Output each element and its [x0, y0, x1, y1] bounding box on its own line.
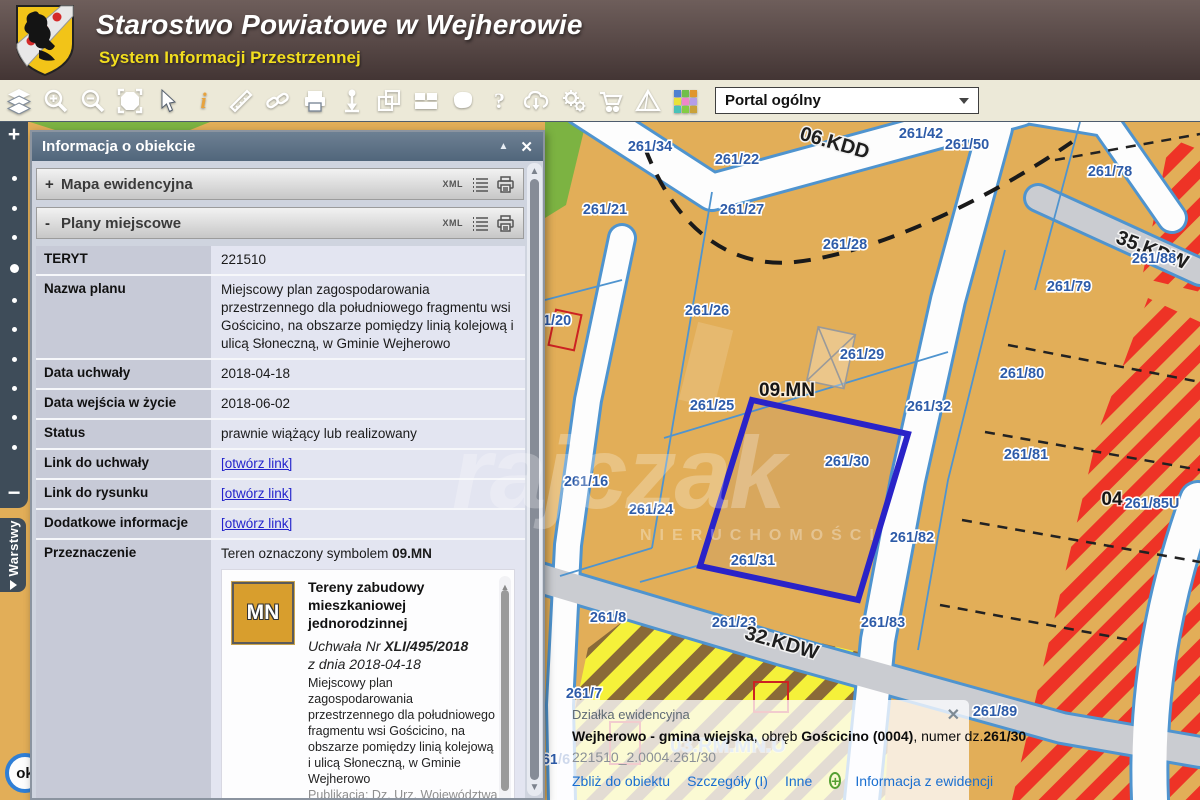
- svg-text:261/89: 261/89: [973, 704, 1017, 720]
- parcel-id: 221510_2.0004.261/30: [572, 749, 957, 765]
- list-icon[interactable]: [472, 177, 489, 192]
- panel-title: Informacja o obiekcie: [42, 138, 499, 155]
- table-row: Link do uchwały [otwórz link]: [36, 450, 525, 480]
- section-label: Mapa ewidencyjna: [61, 176, 443, 193]
- zoom-bar: + −: [0, 122, 28, 508]
- scroll-down-icon[interactable]: ▼: [527, 782, 542, 793]
- table-row: Data wejścia w życie 2018-06-02: [36, 390, 525, 420]
- close-icon[interactable]: ✕: [947, 705, 960, 725]
- svg-text:261/22: 261/22: [715, 152, 759, 168]
- settings-gears-icon[interactable]: [555, 84, 592, 118]
- svg-text:261/34: 261/34: [628, 139, 672, 155]
- field-label: Link do rysunku: [36, 480, 211, 508]
- publication-info: Publikacja: Dz. Urz. Województwa Pomorsk…: [308, 787, 498, 798]
- zoom-out-icon[interactable]: [74, 84, 111, 118]
- svg-text:261/16: 261/16: [564, 474, 608, 490]
- field-value: 221510: [211, 246, 525, 274]
- section-label: Plany miejscowe: [61, 215, 443, 232]
- other-link[interactable]: Inne: [785, 773, 812, 789]
- field-label: Przeznaczenie: [36, 540, 211, 798]
- measure-icon[interactable]: [222, 84, 259, 118]
- zone-title: Tereny zabudowy mieszkaniowej jednorodzi…: [308, 578, 498, 632]
- zoom-in-icon[interactable]: [37, 84, 74, 118]
- zoom-level-dot[interactable]: [12, 357, 17, 362]
- field-value: prawnie wiążący lub realizowany: [211, 420, 525, 448]
- warning-pyramid-icon[interactable]: [629, 84, 666, 118]
- download-marker-icon[interactable]: [333, 84, 370, 118]
- info-icon[interactable]: i: [185, 84, 222, 118]
- list-icon[interactable]: [472, 216, 489, 231]
- open-link[interactable]: [otwórz link]: [221, 456, 292, 471]
- resolution-number: Uchwała Nr XLI/495/2018: [308, 637, 498, 655]
- details-link[interactable]: Szczegóły (I): [687, 773, 768, 789]
- close-icon[interactable]: ✕: [520, 138, 533, 156]
- svg-text:261/21: 261/21: [583, 202, 627, 218]
- scroll-up-icon[interactable]: ▲: [527, 166, 542, 177]
- print-icon[interactable]: [496, 176, 515, 193]
- zoom-level-dot[interactable]: [12, 235, 17, 240]
- svg-text:261/85U: 261/85U: [1125, 496, 1180, 512]
- zoom-out-button[interactable]: −: [8, 478, 21, 508]
- svg-text:261/28: 261/28: [823, 237, 867, 253]
- zoom-level-dot[interactable]: [12, 176, 17, 181]
- portal-select[interactable]: Portal ogólny: [715, 87, 979, 114]
- field-value: 2018-06-02: [211, 390, 525, 418]
- zone-swatch-mn: MN: [232, 582, 294, 644]
- table-row: Dodatkowe informacje [otwórz link]: [36, 510, 525, 540]
- xml-button[interactable]: XML: [443, 179, 464, 189]
- section-plany-miejscowe[interactable]: - Plany miejscowe XML: [36, 207, 524, 239]
- svg-text:261/27: 261/27: [720, 202, 764, 218]
- object-info-panel: Informacja o obiekcie ▲ ✕ + Mapa ewidenc…: [30, 130, 545, 800]
- field-label: Data uchwały: [36, 360, 211, 388]
- scrollbar-thumb[interactable]: [501, 590, 509, 791]
- svg-text:09.MN: 09.MN: [759, 380, 815, 401]
- main-toolbar: i ? Portal ogólny: [0, 80, 1200, 122]
- site-subtitle: System Informacji Przestrzennej: [99, 48, 361, 68]
- field-label: Data wejścia w życie: [36, 390, 211, 418]
- svg-text:261/81: 261/81: [1004, 447, 1048, 463]
- svg-text:261/80: 261/80: [1000, 366, 1044, 382]
- zoom-level-dot[interactable]: [12, 327, 17, 332]
- layout-icon[interactable]: [407, 84, 444, 118]
- plan-attributes-table: TERYT 221510 Nazwa planu Miejscowy plan …: [36, 246, 525, 798]
- map-green-area: [30, 122, 210, 130]
- field-label: Dodatkowe informacje: [36, 510, 211, 538]
- svg-text:261/88: 261/88: [1132, 251, 1176, 267]
- svg-text:261/24: 261/24: [629, 502, 673, 518]
- open-link[interactable]: [otwórz link]: [221, 486, 292, 501]
- site-title: Starostwo Powiatowe w Wejherowie: [96, 9, 583, 41]
- inner-scrollbar[interactable]: ▲ ▼: [499, 576, 511, 798]
- portal-select-value: Portal ogólny: [725, 92, 821, 109]
- help-icon[interactable]: ?: [481, 84, 518, 118]
- parcel-identity: Wejherowo - gmina wiejska, obręb Gościci…: [572, 728, 957, 744]
- coat-of-arms: [13, 4, 77, 77]
- field-label: Nazwa planu: [36, 276, 211, 358]
- cart-icon[interactable]: [592, 84, 629, 118]
- link-icon[interactable]: [259, 84, 296, 118]
- panel-body: + Mapa ewidencyjna XML - Plany miejscowe…: [32, 161, 543, 798]
- zone-detail-box: MN Tereny zabudowy mieszkaniowej jednoro…: [221, 569, 515, 798]
- layers-tab-label: Warstwy: [6, 520, 21, 576]
- zoom-in-button[interactable]: +: [8, 122, 20, 148]
- zone-description: Miejscowy plan zagospodarowania przestrz…: [308, 675, 498, 787]
- table-row: Przeznaczenie Teren oznaczony symbolem 0…: [36, 540, 525, 798]
- copy-frames-icon[interactable]: [370, 84, 407, 118]
- select-area-icon[interactable]: [111, 84, 148, 118]
- panel-header[interactable]: Informacja o obiekcie ▲ ✕: [32, 132, 543, 161]
- pointer-icon[interactable]: [148, 84, 185, 118]
- section-mapa-ewidencyjna[interactable]: + Mapa ewidencyjna XML: [36, 168, 524, 200]
- svg-text:261/32: 261/32: [907, 399, 951, 415]
- svg-text:261/8: 261/8: [590, 610, 626, 626]
- registry-info-link[interactable]: Informacja z ewidencji: [855, 773, 993, 789]
- svg-text:261/31: 261/31: [731, 553, 775, 569]
- table-row: TERYT 221510: [36, 246, 525, 276]
- open-link[interactable]: [otwórz link]: [221, 516, 292, 531]
- svg-text:261/78: 261/78: [1088, 164, 1132, 180]
- field-value: Miejscowy plan zagospodarowania przestrz…: [211, 276, 525, 358]
- plus-circle-icon[interactable]: +: [829, 772, 841, 789]
- table-row: Status prawnie wiążący lub realizowany: [36, 420, 525, 450]
- zoom-level-dot[interactable]: [12, 386, 17, 391]
- scrollbar-thumb[interactable]: [530, 179, 539, 780]
- svg-text:261/29: 261/29: [840, 347, 884, 363]
- legend-grid-icon[interactable]: [666, 84, 703, 118]
- field-label: Link do uchwały: [36, 450, 211, 478]
- svg-text:04: 04: [1101, 489, 1123, 510]
- zoom-level-dot[interactable]: [10, 264, 19, 273]
- print-icon[interactable]: [296, 84, 333, 118]
- zoom-to-object-link[interactable]: Zbliż do obiektu: [572, 773, 670, 789]
- app-window: 261/34261/2206.KDD261/42261/50261/78261/…: [0, 0, 1200, 800]
- field-value: 2018-04-18: [211, 360, 525, 388]
- svg-text:261/26: 261/26: [685, 303, 729, 319]
- collapse-icon[interactable]: ▲: [499, 141, 509, 152]
- zone-intro: Teren oznaczony symbolem 09.MN: [221, 545, 515, 563]
- panel-scrollbar[interactable]: ▲ ▼: [527, 163, 542, 796]
- zoom-level-dot[interactable]: [12, 415, 17, 420]
- field-label: Status: [36, 420, 211, 448]
- xml-button[interactable]: XML: [443, 218, 464, 228]
- chevron-down-icon: [959, 98, 969, 104]
- table-row: Link do rysunku [otwórz link]: [36, 480, 525, 510]
- layers-panel-tab[interactable]: Warstwy: [0, 518, 26, 592]
- zoom-level-dot[interactable]: [12, 445, 17, 450]
- zoom-level-dot[interactable]: [12, 206, 17, 211]
- expand-icon[interactable]: +: [45, 176, 61, 193]
- collapse-icon[interactable]: -: [45, 215, 61, 232]
- przeznaczenie-cell: Teren oznaczony symbolem 09.MN MN Tereny…: [211, 540, 525, 798]
- polygon-icon[interactable]: [444, 84, 481, 118]
- detail-actions: Zbliż do obiektu Szczegóły (I) Inne + In…: [572, 772, 957, 789]
- svg-text:261/30: 261/30: [825, 454, 869, 470]
- cloud-download-icon[interactable]: [518, 84, 555, 118]
- svg-text:261/42: 261/42: [899, 126, 943, 142]
- svg-text:261/83: 261/83: [861, 615, 905, 631]
- table-row: Nazwa planu Miejscowy plan zagospodarowa…: [36, 276, 525, 360]
- triangle-icon: [10, 580, 17, 590]
- svg-text:261/50: 261/50: [945, 137, 989, 153]
- print-icon[interactable]: [496, 215, 515, 232]
- svg-text:261/25: 261/25: [690, 398, 734, 414]
- detail-title: Działka ewidencyjna: [572, 707, 957, 722]
- zoom-level-dot[interactable]: [12, 298, 17, 303]
- parcel-detail-overlay: ✕ Działka ewidencyjna Wejherowo - gmina …: [557, 700, 969, 800]
- field-label: TERYT: [36, 246, 211, 274]
- svg-text:261/82: 261/82: [890, 530, 934, 546]
- zoom-level-dots[interactable]: [10, 148, 19, 478]
- resolution-date: z dnia 2018-04-18: [308, 655, 498, 673]
- table-row: Data uchwały 2018-04-18: [36, 360, 525, 390]
- svg-text:261/79: 261/79: [1047, 279, 1091, 295]
- app-header: Starostwo Powiatowe w Wejherowie System …: [0, 0, 1200, 80]
- layers-icon[interactable]: [0, 84, 37, 118]
